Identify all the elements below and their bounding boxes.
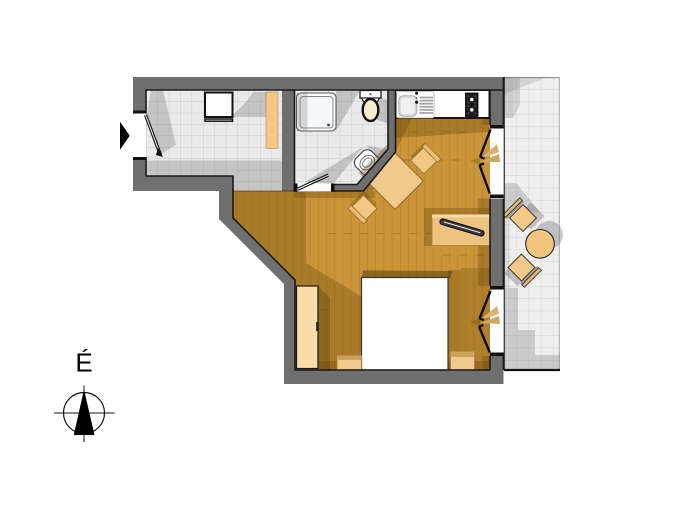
svg-text:É: É — [75, 348, 92, 378]
